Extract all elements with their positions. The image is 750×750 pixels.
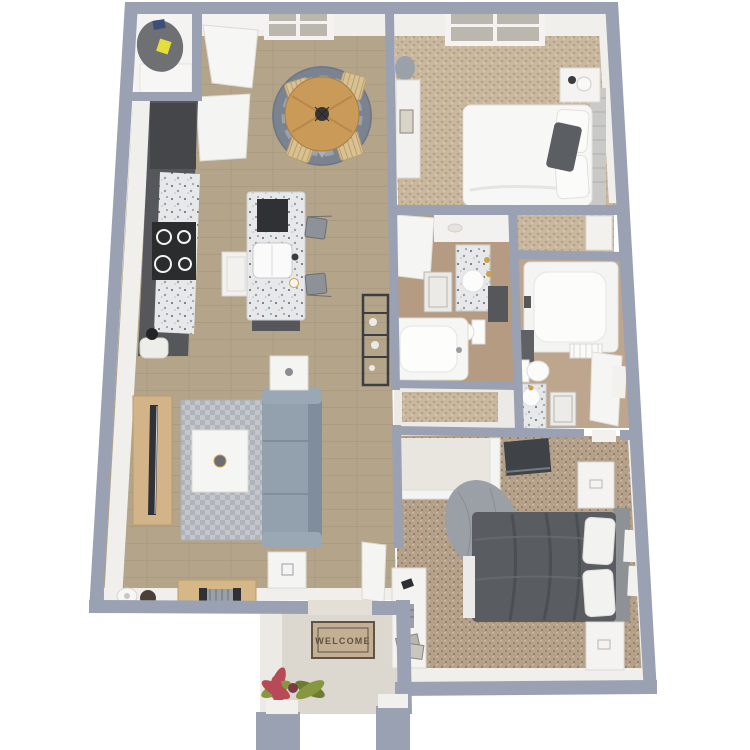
- welcome-mat: WELCOME: [312, 622, 374, 658]
- outer-wall-bottom-right: [395, 680, 657, 696]
- pillow: [582, 517, 615, 565]
- shelf-bowl: [369, 365, 375, 371]
- bath2-faucet: [529, 386, 534, 391]
- coffee-maker: [257, 199, 288, 232]
- porch-post-right: [376, 706, 410, 750]
- porch-post-cap: [378, 694, 408, 708]
- paper-towel-holder: [290, 279, 299, 288]
- front-door-threshold: [308, 600, 372, 615]
- dresser-decor-vase: [395, 56, 415, 80]
- floor-plan-page: WELCOME: [0, 0, 750, 750]
- kitchen-end-cabinet: [140, 338, 168, 358]
- bedroom2-open-door-panel: [362, 542, 386, 602]
- soap-dish: [448, 224, 462, 232]
- refrigerator: [150, 103, 196, 169]
- plant-center: [288, 683, 298, 693]
- floor-vent: [222, 252, 250, 296]
- bath2-window: [611, 366, 627, 399]
- bedroom1-bottom-wall: [393, 205, 618, 215]
- tub-basin: [400, 326, 457, 372]
- floor-basket-center: [124, 593, 130, 599]
- sofa: [262, 388, 322, 548]
- bedroom2-nightstand: [586, 622, 624, 670]
- bath1-mat: [424, 272, 452, 312]
- island-faucet: [292, 254, 299, 261]
- nightstand-clock: [568, 76, 576, 84]
- shelf-bowl: [369, 318, 377, 326]
- garden-tub: [524, 262, 618, 358]
- bath1-sink: [462, 270, 484, 292]
- window-pane: [300, 24, 327, 36]
- outer-wall-bottom-left: [89, 600, 308, 614]
- side-table: [268, 552, 306, 588]
- laundry-closet-wall-bottom: [125, 92, 202, 101]
- dresser-picture-frame: [400, 110, 413, 133]
- pillow: [582, 569, 615, 617]
- walkin-closet: [586, 216, 612, 250]
- tub-handle: [524, 296, 531, 308]
- bathtub1: [392, 318, 468, 380]
- stool-seat: [305, 273, 327, 295]
- bedroom2-nightstand: [578, 462, 614, 508]
- sofa-armrest: [262, 532, 322, 548]
- bedroom2-top-window: [592, 430, 616, 442]
- outer-wall-bottom-door-jamb: [372, 601, 400, 615]
- stool-seat: [305, 217, 328, 240]
- open-door-panel: [203, 25, 258, 88]
- dining-area: [272, 66, 372, 166]
- bath1-faucet: [484, 257, 490, 263]
- bath1-open-door: [396, 215, 434, 280]
- bench-decor-end: [233, 588, 241, 602]
- bath1-ledge: [434, 214, 510, 242]
- window-pane: [497, 27, 539, 41]
- bath1-faucet: [486, 271, 492, 277]
- shelf-bowl: [371, 341, 379, 349]
- headboard: [614, 508, 630, 622]
- foot-bench: [463, 556, 475, 618]
- bedroom2-bed: [463, 508, 630, 622]
- toilet-bowl: [527, 361, 549, 381]
- tub-basin: [534, 272, 606, 342]
- porch-post-cap: [266, 700, 298, 714]
- window-pane: [269, 24, 296, 36]
- window-pane: [451, 27, 493, 41]
- bath2-sink: [522, 388, 540, 406]
- hall-closet-carpet: [402, 392, 498, 422]
- floor-plan-rendering: WELCOME: [0, 0, 750, 750]
- sofa-backrest: [308, 392, 322, 544]
- porch-post-left: [256, 712, 300, 750]
- pantry-door-panel: [196, 94, 250, 161]
- bedroom1-bed: [463, 88, 606, 206]
- coffee-table-decor: [214, 455, 226, 467]
- side-table-decor: [285, 368, 293, 376]
- bench-decor-end: [199, 588, 207, 602]
- bath1-cabinet: [488, 286, 508, 322]
- laundry-closet-wall-right: [192, 2, 202, 101]
- nightstand-lamp: [577, 77, 591, 91]
- welcome-mat-text: WELCOME: [315, 636, 370, 646]
- tub-faucet: [456, 347, 462, 353]
- kettle: [146, 328, 158, 340]
- bedroom2-top-wall-right: [620, 430, 634, 440]
- bathroom2: [516, 262, 627, 430]
- closet-shelf: [586, 216, 612, 250]
